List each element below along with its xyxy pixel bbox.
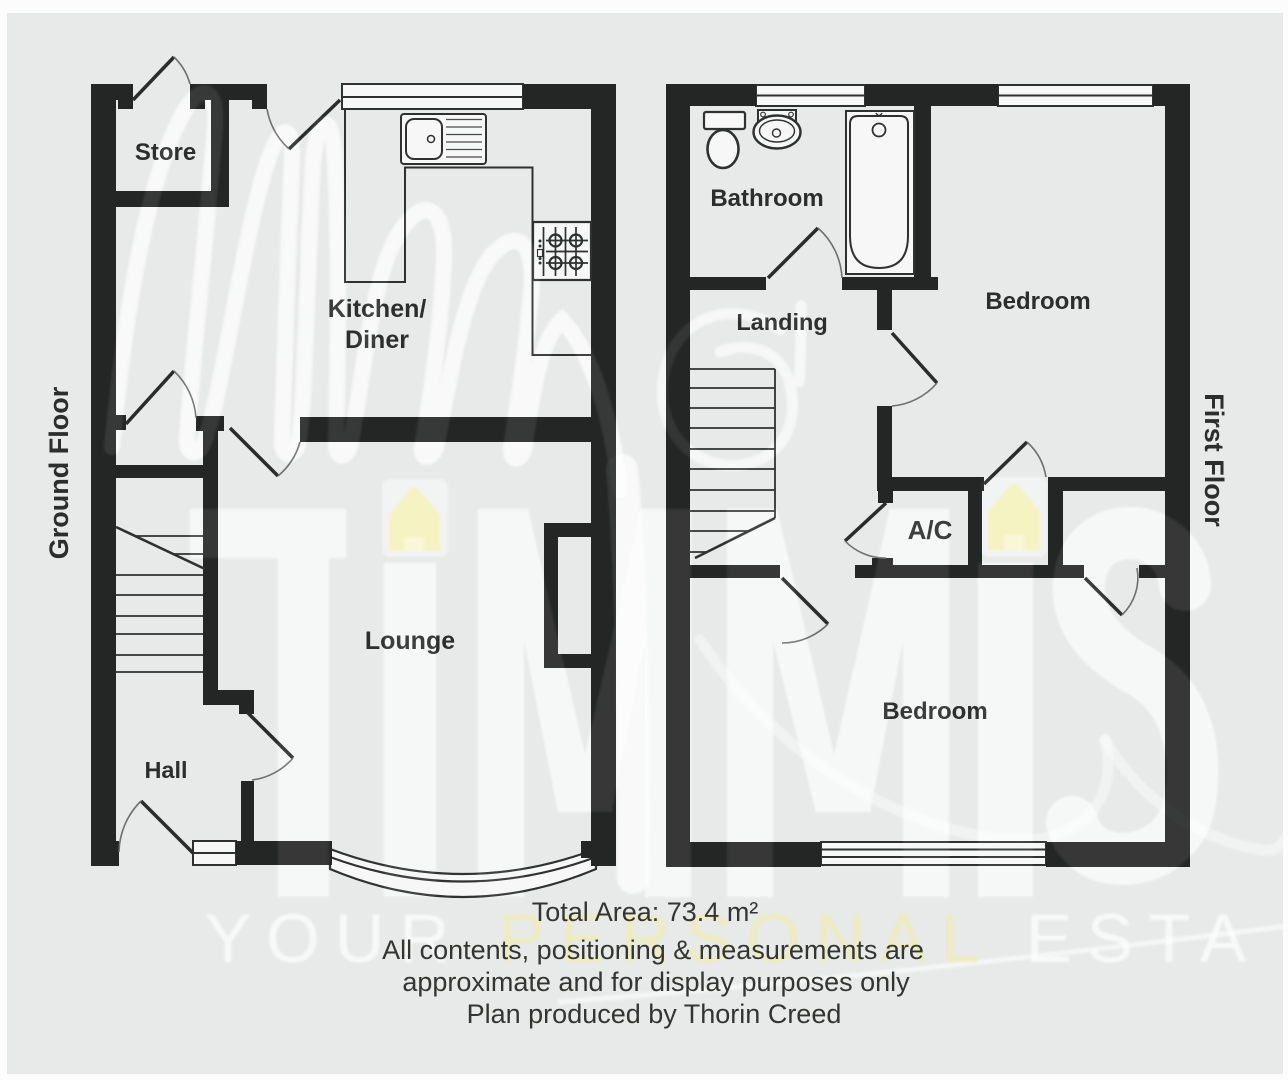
svg-text:Bathroom: Bathroom: [710, 185, 823, 212]
svg-text:Ground Floor: Ground Floor: [44, 386, 74, 559]
svg-text:Plan produced by Thorin Creed: Plan produced by Thorin Creed: [467, 999, 842, 1029]
svg-text:First Floor: First Floor: [1199, 393, 1229, 527]
svg-text:approximate and for display pu: approximate and for display purposes onl…: [402, 967, 910, 997]
svg-text:Bedroom: Bedroom: [985, 288, 1090, 315]
svg-text:Hall: Hall: [144, 757, 187, 783]
svg-text:All contents, positioning & me: All contents, positioning & measurements…: [382, 935, 924, 965]
svg-text:Total Area: 73.4 m²: Total Area: 73.4 m²: [532, 897, 759, 927]
